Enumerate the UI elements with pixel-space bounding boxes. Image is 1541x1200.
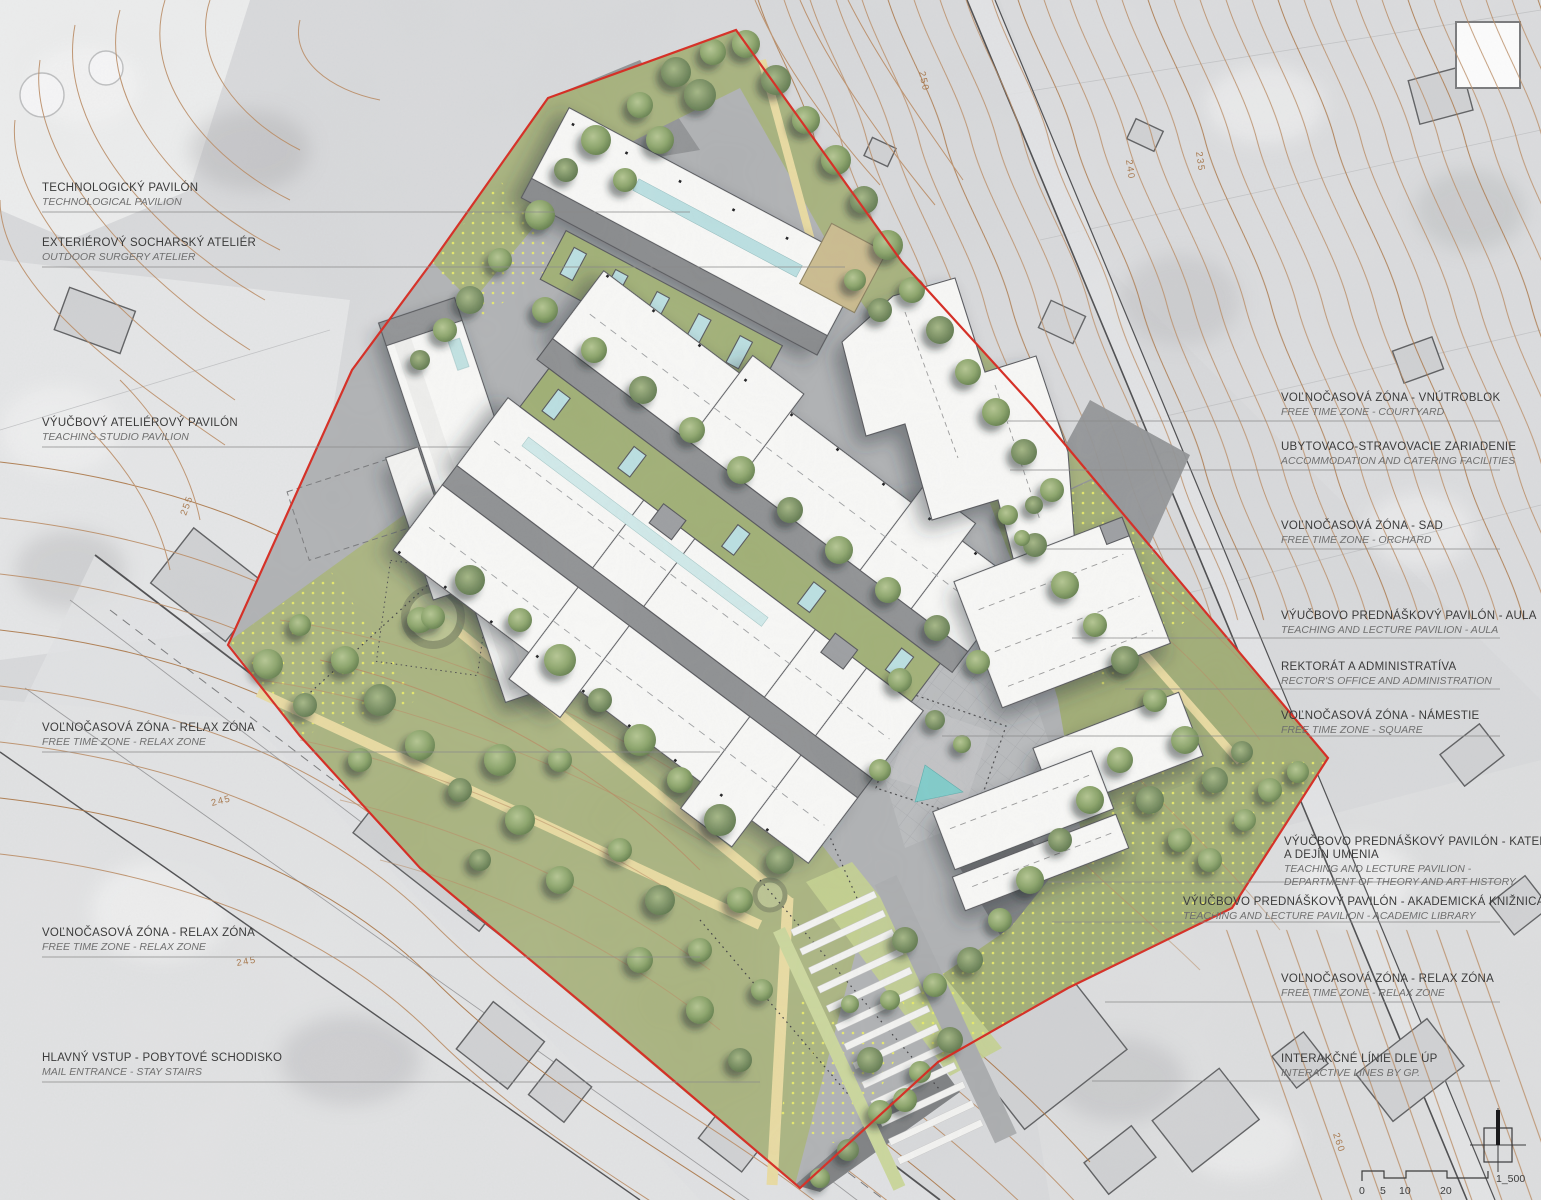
scale-tick: 5 [1380, 1185, 1386, 1197]
scale-tick: 0 [1359, 1185, 1365, 1197]
scale-tick: 20 [1440, 1185, 1452, 1197]
scale-tick: 10 [1399, 1185, 1411, 1197]
scale-ratio: 1_500 [1496, 1173, 1525, 1185]
grain-overlay [0, 0, 1541, 1200]
site-plan-sheet: 250 240 235 245 245 255 260 0 5 10 20 1_… [0, 0, 1541, 1200]
site-plan-canvas: 250 240 235 245 245 255 260 0 5 10 20 1_… [0, 0, 1541, 1200]
